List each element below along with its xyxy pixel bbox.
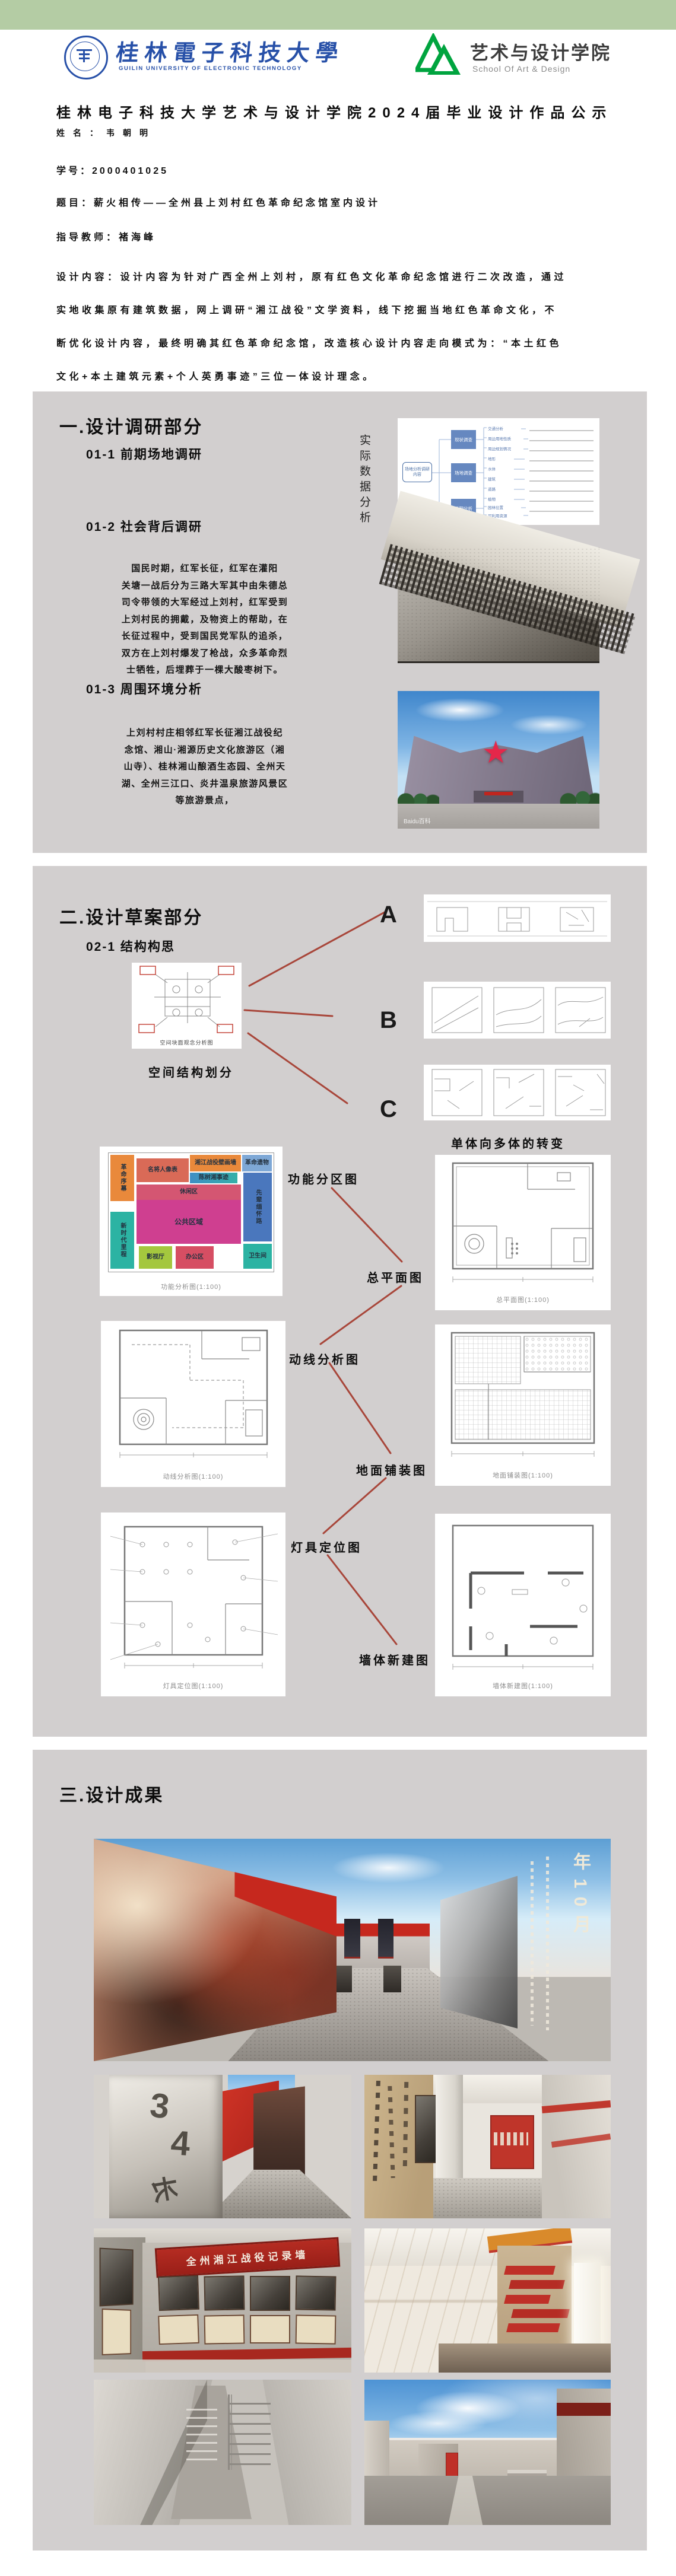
section1-sub3: 01-3 周围环境分析 bbox=[86, 680, 202, 698]
paving-plan-drawing: 地面铺装图(1:100) bbox=[435, 1324, 611, 1486]
cloud bbox=[332, 1852, 446, 1884]
stele-number: 4 bbox=[170, 2123, 192, 2164]
render-record-wall-room: 全州湘江战役记录墙 bbox=[94, 2228, 351, 2373]
student-id: 学号：2000401025 bbox=[56, 163, 169, 177]
render-stele-passage: 3 4 长 bbox=[94, 2075, 351, 2218]
mindmap-branch: 道路 bbox=[488, 486, 496, 492]
sketch-caption: 空间块面观念分析图 bbox=[132, 1039, 242, 1046]
master-label: 总平面图 bbox=[367, 1268, 424, 1285]
floor bbox=[439, 2343, 611, 2373]
zone-block: 卫生间 bbox=[243, 1244, 272, 1269]
university-name-cn: 桂林電子科技大學 bbox=[115, 34, 346, 67]
wall-label: 墙体新建图 bbox=[359, 1651, 430, 1668]
section2-sub: 02-1 结构构思 bbox=[86, 937, 175, 955]
advisor-line: 指导教师：褚海峰 bbox=[56, 229, 156, 243]
memorial-star-icon: ★ bbox=[482, 735, 510, 770]
school-name-en: School Of Art & Design bbox=[472, 64, 570, 74]
stone-pedestal bbox=[334, 1966, 352, 1992]
zone-block: 影视厅 bbox=[139, 1246, 172, 1269]
plan-caption: 墙体新建图(1:100) bbox=[435, 1681, 611, 1690]
courtyard-cells bbox=[228, 2394, 271, 2470]
map-frame-row bbox=[158, 2315, 336, 2344]
sketch-strip-c bbox=[424, 1065, 611, 1120]
option-letter-a: A bbox=[380, 902, 397, 928]
hanging-banner bbox=[378, 1919, 393, 1959]
mindmap-node: 场地调查 bbox=[451, 463, 476, 482]
red-sign bbox=[506, 2323, 560, 2332]
render-calligraphy-hall bbox=[364, 2075, 611, 2218]
lighting-plan-drawing: 灯具定位图(1:100) bbox=[101, 1513, 285, 1696]
plan-caption: 动线分析图(1:100) bbox=[101, 1472, 285, 1481]
exhibit-frames bbox=[494, 2132, 528, 2145]
poster-page: 桂林電子科技大學 GUILIN UNIVERSITY OF ELECTRONIC… bbox=[0, 0, 676, 2576]
vertical-data-label: 实际数据分析 bbox=[356, 434, 372, 535]
bw-photo-frame bbox=[204, 2276, 245, 2311]
photo-frame-row bbox=[158, 2276, 336, 2310]
zone-block: 名将人像表 bbox=[137, 1158, 189, 1182]
framed-artwork bbox=[415, 2095, 437, 2163]
mindmap-branch: 水体 bbox=[488, 466, 496, 472]
bw-photo-frame bbox=[295, 2276, 336, 2311]
section1-para2: 上刘村村庄相邻红军长征湘江战役纪 念馆、湘山·湘源历史文化旅游区（湘 山寺）、桂… bbox=[95, 725, 315, 810]
topic-line: 题目：薪火相传——全州县上刘村红色革命纪念馆室内设计 bbox=[56, 195, 380, 209]
bw-photo-frame bbox=[250, 2276, 290, 2310]
zone-block: 湘江战役壁画墙 bbox=[190, 1155, 241, 1171]
far-wall bbox=[305, 2075, 351, 2178]
zone-block: 办公区 bbox=[176, 1246, 214, 1269]
page-title: 桂林电子科技大学艺术与设计学院2024届毕业设计作品公示 bbox=[56, 101, 612, 122]
doorway-light bbox=[574, 2263, 601, 2352]
memorial-plaque bbox=[484, 792, 513, 795]
rust-wall-calligraphy: 年10月 bbox=[567, 1852, 593, 2030]
space-concept-sketch: 空间块面观念分析图 bbox=[132, 963, 242, 1049]
option-letter-b: B bbox=[380, 1007, 397, 1034]
framed-poster bbox=[102, 2308, 131, 2355]
stone-pedestal bbox=[383, 1966, 401, 1992]
render-hero-corridor: 年10月 bbox=[94, 1839, 611, 2061]
bench-lines bbox=[186, 2409, 217, 2467]
student-name: 姓名：韦朝明 bbox=[56, 127, 156, 139]
master-plan-drawing: 总平面图(1:100) bbox=[435, 1155, 611, 1310]
school-name-cn: 艺术与设计学院 bbox=[470, 38, 611, 65]
map-frame bbox=[204, 2314, 245, 2344]
section1-sub1: 01-1 前期场地调研 bbox=[86, 445, 202, 463]
sketch-strip-a bbox=[424, 894, 611, 942]
sketch-strip-b bbox=[424, 982, 611, 1039]
structure-caption: 空间结构划分 bbox=[148, 1063, 234, 1080]
section-results-panel: 三.设计成果 年10月 bbox=[33, 1750, 647, 2550]
photo-watermark: Baidu百科 bbox=[404, 816, 431, 825]
zone-block: 革命遗物 bbox=[242, 1155, 272, 1171]
zone-block: 革命序幕 bbox=[110, 1155, 134, 1201]
lighting-label: 灯具定位图 bbox=[291, 1538, 362, 1555]
university-seal-icon bbox=[64, 36, 108, 79]
transform-caption: 单体向多体的转变 bbox=[451, 1134, 565, 1151]
red-sign bbox=[511, 2309, 570, 2318]
mindmap-branch: 周边用地性质 bbox=[488, 435, 511, 441]
plan-caption: 功能分析图(1:100) bbox=[100, 1282, 283, 1291]
zone-block: 新时代里程 bbox=[110, 1212, 134, 1269]
framed-photo bbox=[99, 2247, 134, 2306]
zone-block: 休闲区 bbox=[137, 1184, 241, 1200]
mindmap-branch: 地形 bbox=[488, 456, 496, 461]
render-marble-corridor bbox=[364, 2228, 611, 2373]
floor bbox=[94, 2360, 351, 2373]
red-army-march-photo bbox=[398, 547, 599, 663]
design-content: 设计内容：设计内容为针对广西全州上刘村，原有红色文化革命纪念馆进行二次改造，通过… bbox=[56, 261, 626, 394]
mindmap-branch: 交通分析 bbox=[488, 425, 503, 431]
mindmap-root: 场地分析调研内容 bbox=[402, 462, 432, 482]
section-research-panel: 一.设计调研部分 01-1 前期场地调研 实际数据分析 场地分析调研内容 现状调… bbox=[33, 391, 647, 853]
zone-block: 陈树湘事迹 bbox=[190, 1173, 237, 1183]
map-frame bbox=[158, 2314, 199, 2345]
option-letter-c: C bbox=[380, 1096, 397, 1123]
mindmap-branch: 植物 bbox=[488, 496, 496, 502]
map-frame bbox=[295, 2314, 336, 2344]
section2-heading: 二.设计草案部分 bbox=[59, 903, 203, 929]
render-aerial-view bbox=[94, 2380, 351, 2525]
rust-wall-text-column bbox=[531, 1861, 534, 2026]
red-sign bbox=[509, 2280, 565, 2289]
red-sign bbox=[504, 2266, 556, 2275]
seal-glyph bbox=[77, 49, 92, 62]
university-name-en: GUILIN UNIVERSITY OF ELECTRONIC TECHNOLO… bbox=[119, 65, 302, 72]
map-frame bbox=[250, 2315, 290, 2344]
mindmap-node: 现状调查 bbox=[451, 430, 476, 449]
mindmap-branch: 建筑 bbox=[488, 476, 496, 482]
wall-plan-drawing: 墙体新建图(1:100) bbox=[435, 1514, 611, 1696]
red-sign bbox=[504, 2295, 550, 2304]
bw-photo-frame bbox=[158, 2275, 199, 2311]
section3-heading: 三.设计成果 bbox=[59, 1781, 164, 1807]
plan-caption: 总平面图(1:100) bbox=[435, 1295, 611, 1304]
section1-sub2: 01-2 社会背后调研 bbox=[86, 517, 202, 535]
cloud bbox=[510, 715, 588, 735]
right-wall-red-band bbox=[557, 2403, 611, 2416]
record-wall-banner-text: 全州湘江战役记录墙 bbox=[186, 2246, 309, 2269]
memorial-hall-photo: ★ Baidu百科 bbox=[398, 691, 599, 829]
paving-label: 地面铺装图 bbox=[356, 1461, 427, 1478]
school-logo-icon bbox=[415, 33, 463, 77]
plan-caption: 地面铺装图(1:100) bbox=[435, 1470, 611, 1480]
header: 桂林電子科技大學 GUILIN UNIVERSITY OF ELECTRONIC… bbox=[0, 31, 676, 87]
zone-block: 公共区域 bbox=[137, 1200, 241, 1244]
red-poster bbox=[446, 2453, 458, 2477]
render-courtyard bbox=[364, 2380, 611, 2525]
photo-grain bbox=[398, 547, 599, 661]
cloud bbox=[415, 698, 504, 722]
rust-wall-text-column bbox=[546, 1857, 549, 2030]
mindmap-branch: 园林位置 bbox=[488, 504, 503, 510]
cobble-ground bbox=[364, 2476, 611, 2525]
plan-caption: 灯具定位图(1:100) bbox=[101, 1681, 285, 1690]
mindmap-desc-lines bbox=[529, 426, 594, 519]
functional-zoning-plan: 革命序幕 名将人像表 湘江战役壁画墙 陈树湘事迹 革命遗物 先辈缅怀路 休闲区 … bbox=[100, 1147, 283, 1296]
zoning-label: 功能分区图 bbox=[288, 1170, 359, 1187]
section1-para1: 国民时期，红军长征，红军在灌阳 关塘一战后分为三路大军其中由朱德总 司令带领的大… bbox=[95, 561, 315, 679]
circulation-plan-drawing: 动线分析图(1:100) bbox=[101, 1321, 285, 1487]
hanging-banner bbox=[344, 1919, 360, 1959]
zone-block: 先辈缅怀路 bbox=[243, 1173, 272, 1241]
section-draft-panel: 二.设计草案部分 02-1 结构构思 空间块面观念分析图 bbox=[33, 866, 647, 1737]
top-green-bar bbox=[0, 0, 676, 30]
circulation-label: 动线分析图 bbox=[289, 1350, 360, 1367]
section1-heading: 一.设计调研部分 bbox=[59, 412, 203, 438]
mindmap-branch: 周边规划情况 bbox=[488, 445, 511, 451]
